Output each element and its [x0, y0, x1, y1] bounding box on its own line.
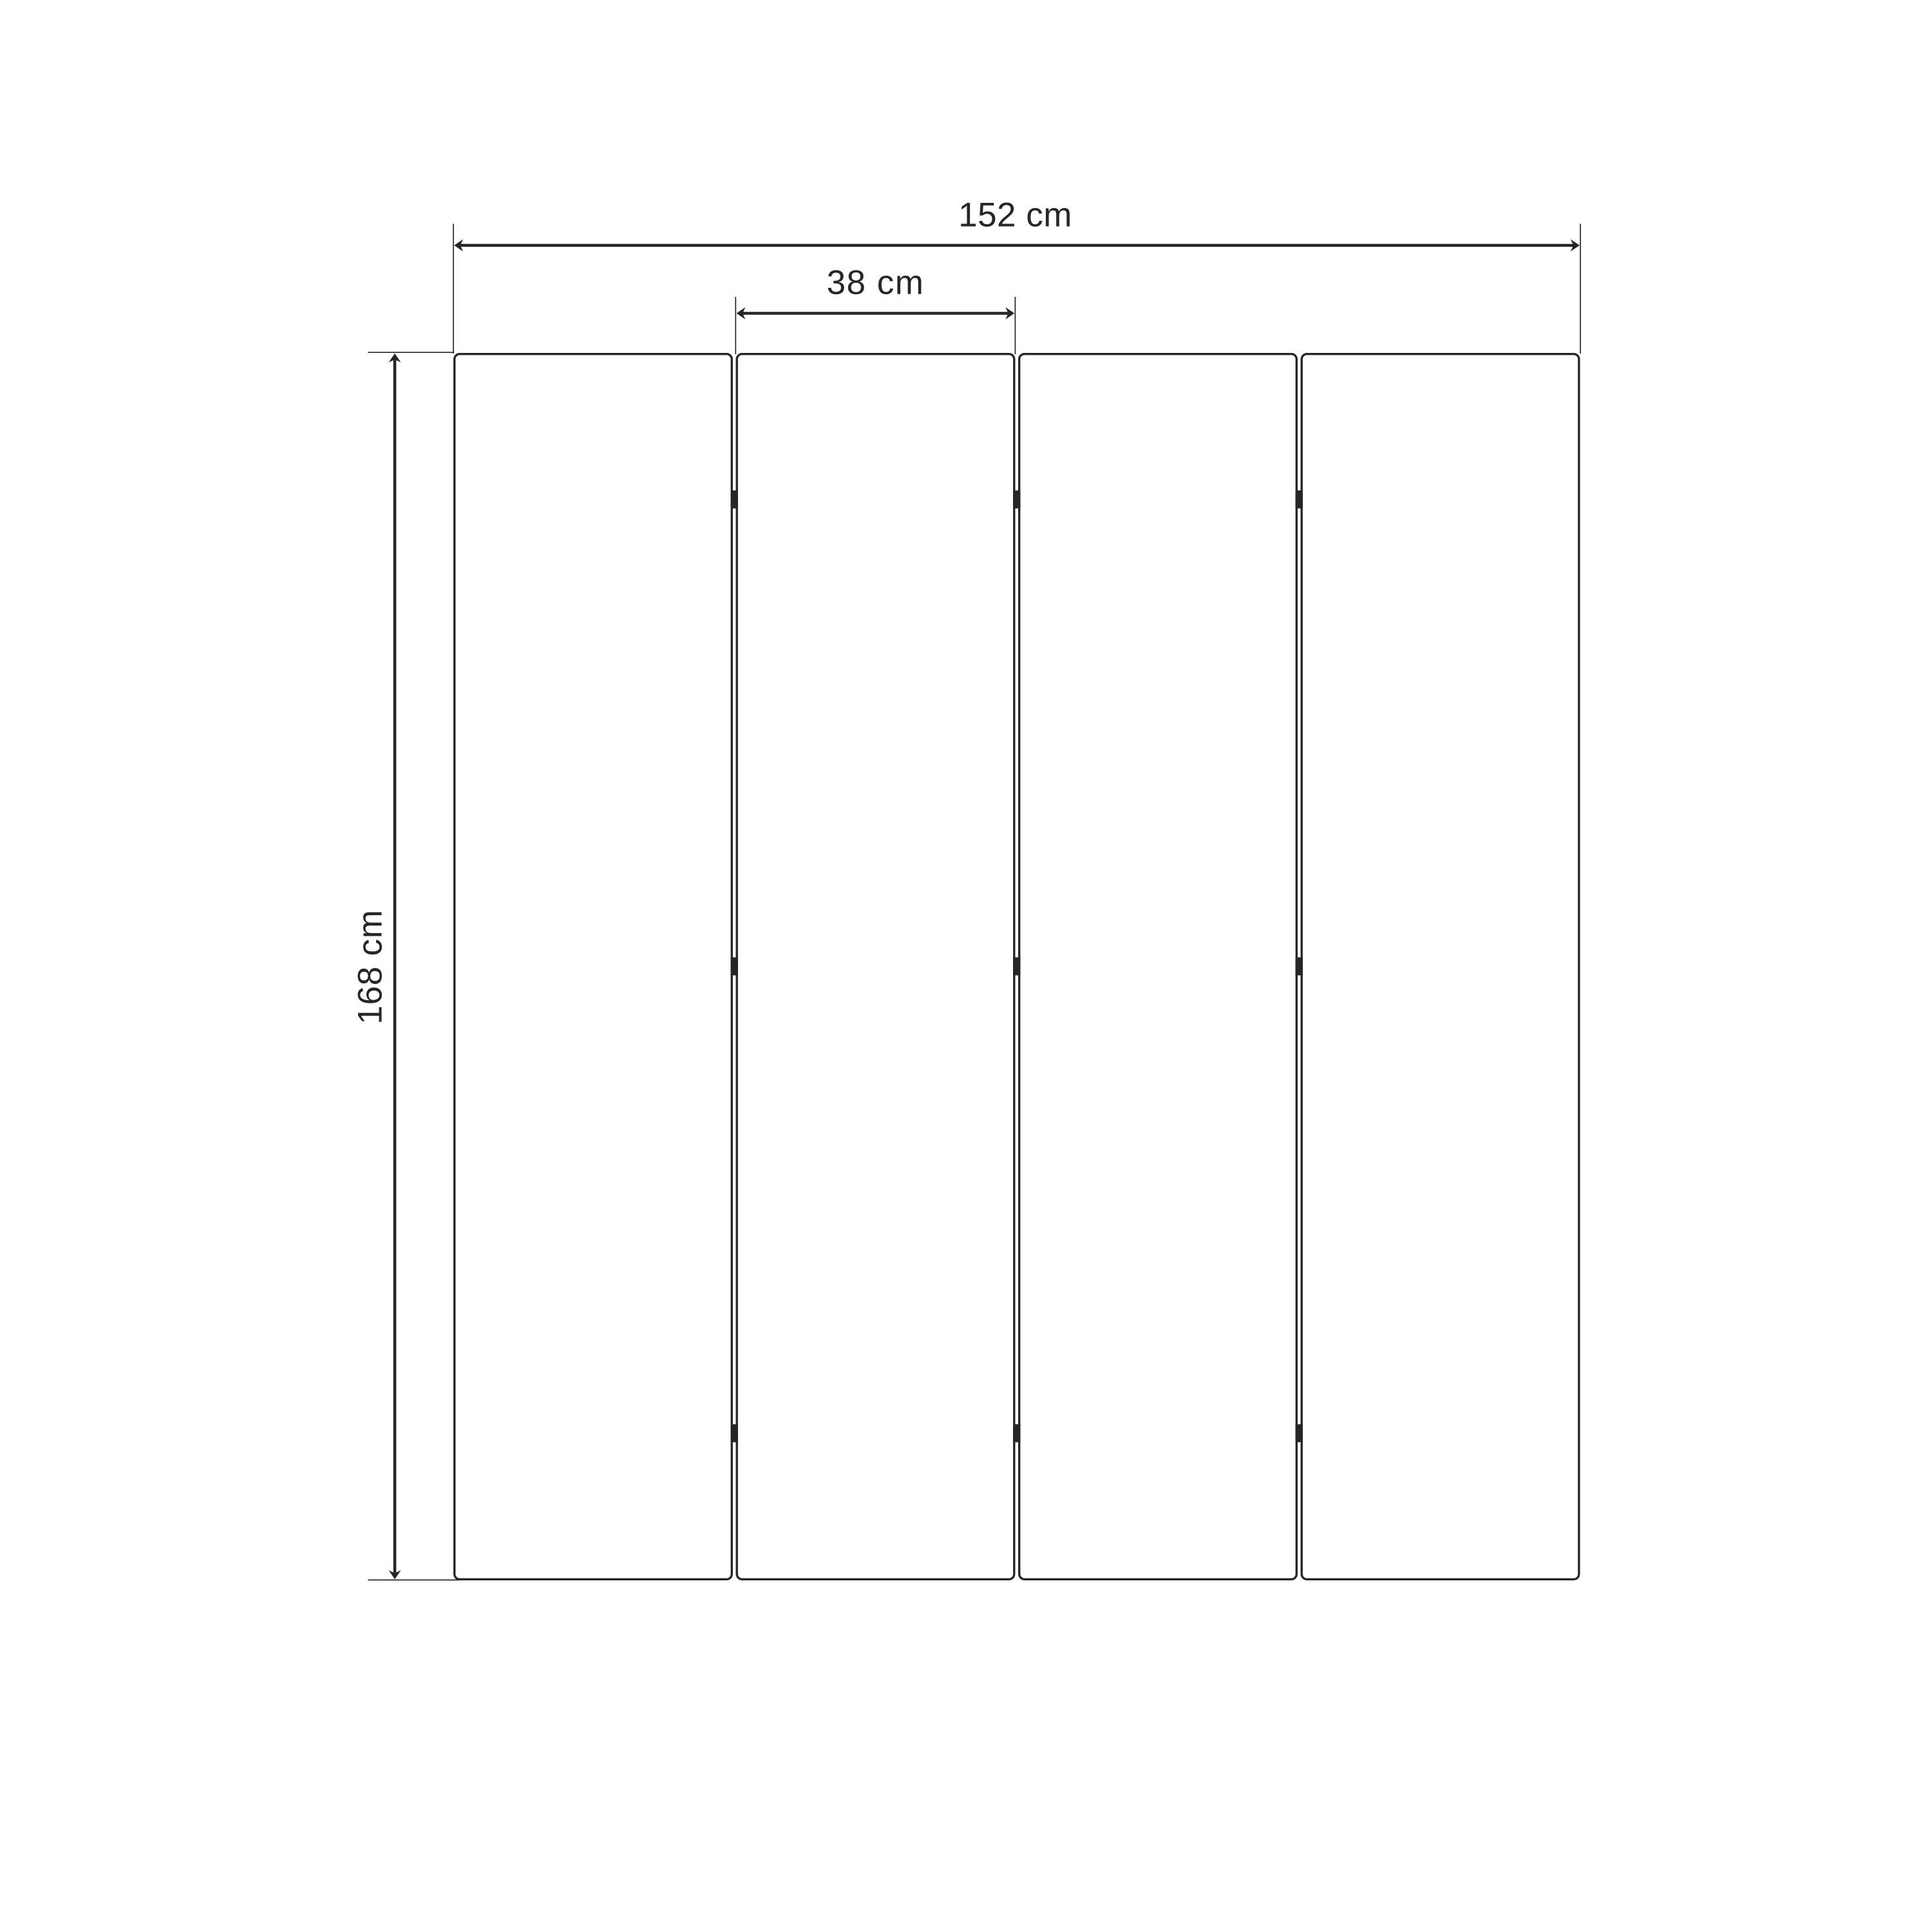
svg-text:152 cm: 152 cm — [958, 196, 1072, 234]
svg-text:168 cm: 168 cm — [352, 909, 390, 1025]
svg-text:38 cm: 38 cm — [827, 264, 925, 302]
